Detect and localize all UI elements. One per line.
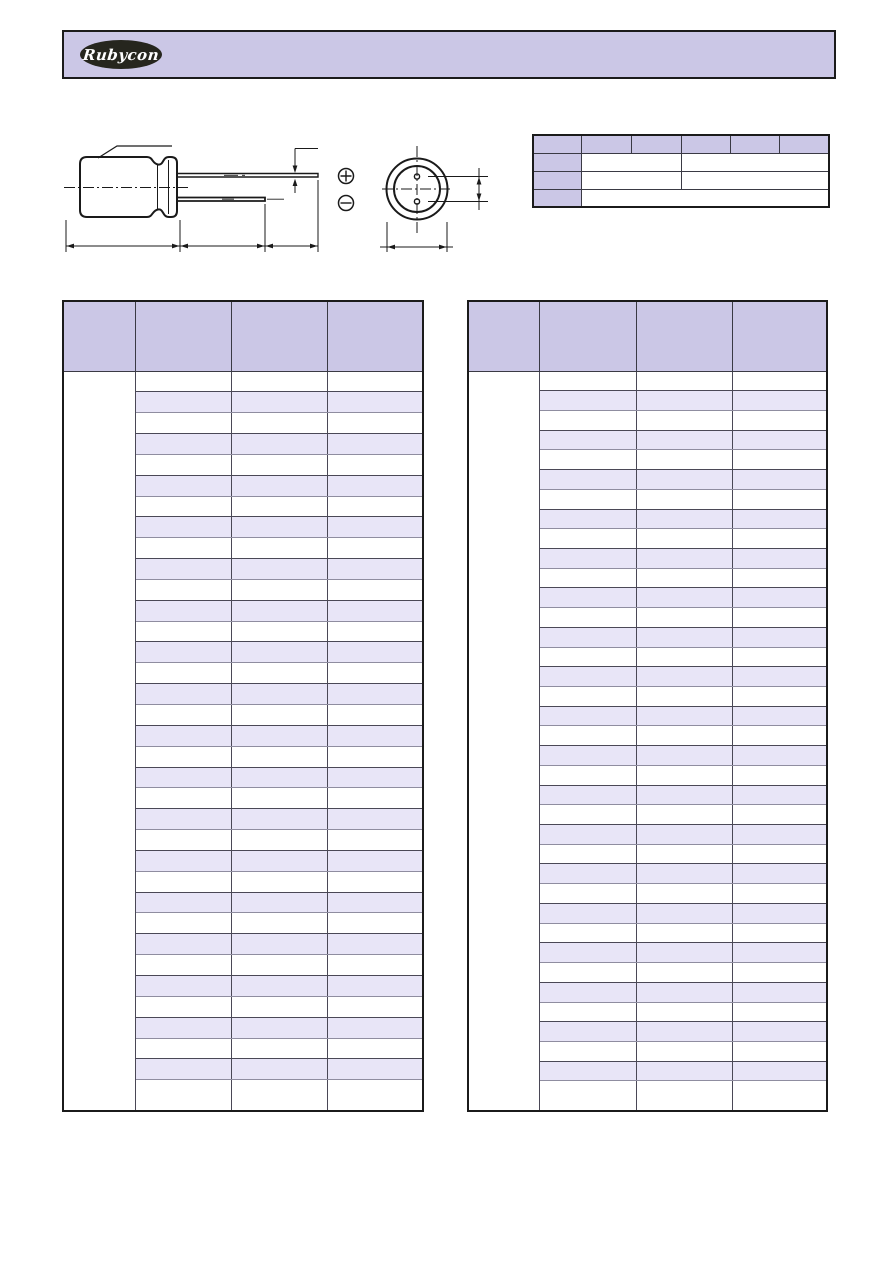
data-cell <box>327 934 423 955</box>
data-cell <box>327 371 423 392</box>
spec-header-cell <box>730 135 779 153</box>
column-header-cell <box>327 301 423 371</box>
data-cell <box>636 489 732 509</box>
data-cell <box>539 844 636 864</box>
data-cell <box>539 1061 636 1081</box>
data-cell <box>636 746 732 766</box>
series-label-cell <box>468 371 539 1111</box>
data-cell <box>636 470 732 490</box>
data-cell <box>327 1080 423 1111</box>
data-cell <box>636 765 732 785</box>
data-cell <box>636 1002 732 1022</box>
data-cell <box>231 517 327 538</box>
data-cell <box>539 1022 636 1042</box>
data-cell <box>636 982 732 1002</box>
data-cell <box>732 746 827 766</box>
data-cell <box>636 785 732 805</box>
data-cell <box>732 785 827 805</box>
data-cell <box>327 579 423 600</box>
data-cell <box>135 517 231 538</box>
data-cell <box>732 982 827 1002</box>
data-cell <box>732 825 827 845</box>
data-cell <box>636 391 732 411</box>
data-cell <box>135 892 231 913</box>
data-cell <box>231 663 327 684</box>
data-cell <box>539 410 636 430</box>
data-cell <box>231 621 327 642</box>
data-cell <box>539 884 636 904</box>
spec-header-cell <box>681 135 730 153</box>
data-cell <box>636 450 732 470</box>
data-cell <box>636 647 732 667</box>
spec-header-cell <box>533 135 581 153</box>
data-cell <box>636 371 732 391</box>
data-cell <box>732 529 827 549</box>
data-cell <box>636 943 732 963</box>
data-cell <box>135 579 231 600</box>
data-cell <box>539 509 636 529</box>
data-cell <box>732 1081 827 1111</box>
data-cell <box>539 706 636 726</box>
spec-value-cell <box>581 153 681 171</box>
data-cell <box>732 805 827 825</box>
data-cell <box>231 475 327 496</box>
data-cell <box>636 884 732 904</box>
data-cell <box>135 621 231 642</box>
data-cell <box>231 684 327 705</box>
data-cell <box>231 788 327 809</box>
bottom-view <box>380 146 488 252</box>
spec-value-cell <box>681 171 829 189</box>
data-cell <box>732 627 827 647</box>
data-cell <box>636 627 732 647</box>
data-cell <box>327 663 423 684</box>
data-cell <box>539 943 636 963</box>
column-header-cell <box>63 301 135 371</box>
data-cell <box>636 706 732 726</box>
data-cell <box>135 788 231 809</box>
data-cell <box>636 805 732 825</box>
data-cell <box>636 667 732 687</box>
data-cell <box>327 892 423 913</box>
data-cell <box>732 489 827 509</box>
data-cell <box>231 392 327 413</box>
data-cell <box>231 746 327 767</box>
data-cell <box>539 1041 636 1061</box>
data-cell <box>327 809 423 830</box>
data-cell <box>327 496 423 517</box>
data-cell <box>732 963 827 983</box>
data-cell <box>636 726 732 746</box>
data-cell <box>327 475 423 496</box>
data-cell <box>539 765 636 785</box>
data-cell <box>732 943 827 963</box>
data-cell <box>732 923 827 943</box>
data-cell <box>135 871 231 892</box>
data-cell <box>732 450 827 470</box>
data-cell <box>231 809 327 830</box>
spec-header-cell <box>533 153 581 171</box>
data-cell <box>539 489 636 509</box>
data-cell <box>231 830 327 851</box>
data-cell <box>135 913 231 934</box>
data-cell <box>636 548 732 568</box>
data-cell <box>732 608 827 628</box>
data-cell <box>636 825 732 845</box>
data-cell <box>539 450 636 470</box>
data-cell <box>732 391 827 411</box>
data-cell <box>135 767 231 788</box>
data-cell <box>231 538 327 559</box>
data-cell <box>327 1059 423 1080</box>
data-cell <box>732 1002 827 1022</box>
data-cell <box>327 955 423 976</box>
data-cell <box>636 864 732 884</box>
data-cell <box>231 850 327 871</box>
data-cell <box>135 1059 231 1080</box>
data-cell <box>732 509 827 529</box>
data-cell <box>539 805 636 825</box>
data-cell <box>732 588 827 608</box>
data-cell <box>732 903 827 923</box>
data-cell <box>539 470 636 490</box>
table-row <box>468 371 827 391</box>
data-cell <box>636 1061 732 1081</box>
data-cell <box>636 529 732 549</box>
column-header-cell <box>539 301 636 371</box>
column-header-cell <box>231 301 327 371</box>
data-cell <box>135 1080 231 1111</box>
data-cell <box>135 975 231 996</box>
data-cell <box>231 1059 327 1080</box>
data-cell <box>732 687 827 707</box>
data-cell <box>539 608 636 628</box>
column-header-cell <box>135 301 231 371</box>
data-cell <box>327 1038 423 1059</box>
data-cell <box>327 767 423 788</box>
data-cell <box>539 1002 636 1022</box>
data-cell <box>327 559 423 580</box>
spec-header-cell <box>631 135 681 153</box>
data-cell <box>327 871 423 892</box>
data-cell <box>327 975 423 996</box>
data-cell <box>231 871 327 892</box>
data-cell <box>327 1017 423 1038</box>
data-cell <box>135 955 231 976</box>
data-cell <box>636 430 732 450</box>
data-cell <box>231 996 327 1017</box>
data-cell <box>231 913 327 934</box>
data-cell <box>231 1080 327 1111</box>
data-cell <box>327 830 423 851</box>
rubycon-logo-text: Rubycon <box>82 46 160 64</box>
data-cell <box>539 391 636 411</box>
negative-lead <box>178 198 265 202</box>
polarity-negative-icon <box>339 196 354 211</box>
data-cell <box>231 1038 327 1059</box>
data-cell <box>539 982 636 1002</box>
data-cell <box>636 1022 732 1042</box>
data-cell <box>732 470 827 490</box>
data-cell <box>732 647 827 667</box>
data-cell <box>327 642 423 663</box>
data-cell <box>231 559 327 580</box>
data-cell <box>231 434 327 455</box>
data-cell <box>135 705 231 726</box>
data-cell <box>135 746 231 767</box>
data-cell <box>732 726 827 746</box>
data-cell <box>539 371 636 391</box>
data-cell <box>327 454 423 475</box>
data-cell <box>135 413 231 434</box>
data-cell <box>327 600 423 621</box>
ratings-table-left <box>62 300 424 1112</box>
spec-value-cell <box>581 189 829 207</box>
data-cell <box>539 548 636 568</box>
data-cell <box>135 496 231 517</box>
data-cell <box>327 684 423 705</box>
data-cell <box>539 667 636 687</box>
data-cell <box>231 454 327 475</box>
data-cell <box>732 706 827 726</box>
data-cell <box>135 642 231 663</box>
data-cell <box>231 600 327 621</box>
data-cell <box>135 538 231 559</box>
column-header-cell <box>468 301 539 371</box>
data-cell <box>327 705 423 726</box>
data-cell <box>231 934 327 955</box>
data-cell <box>732 430 827 450</box>
data-cell <box>539 923 636 943</box>
data-cell <box>636 509 732 529</box>
data-cell <box>327 788 423 809</box>
data-cell <box>135 809 231 830</box>
data-cell <box>231 892 327 913</box>
data-cell <box>135 996 231 1017</box>
data-cell <box>327 850 423 871</box>
data-cell <box>135 434 231 455</box>
capacitor-dimension-drawing <box>60 130 500 265</box>
data-cell <box>135 392 231 413</box>
data-cell <box>539 687 636 707</box>
table-row <box>63 371 423 392</box>
datasheet-page: Rubycon <box>0 0 893 1263</box>
data-cell <box>135 475 231 496</box>
data-cell <box>135 1038 231 1059</box>
side-view <box>64 146 354 252</box>
data-cell <box>539 746 636 766</box>
data-cell <box>732 844 827 864</box>
data-cell <box>327 621 423 642</box>
data-cell <box>327 538 423 559</box>
data-cell <box>636 410 732 430</box>
data-cell <box>135 454 231 475</box>
column-header-cell <box>732 301 827 371</box>
data-cell <box>231 955 327 976</box>
data-cell <box>636 608 732 628</box>
spec-value-cell <box>581 171 681 189</box>
data-cell <box>732 1022 827 1042</box>
data-cell <box>231 705 327 726</box>
data-cell <box>231 496 327 517</box>
data-cell <box>732 884 827 904</box>
data-cell <box>636 1081 732 1111</box>
data-cell <box>636 923 732 943</box>
spec-header-cell <box>533 189 581 207</box>
data-cell <box>732 410 827 430</box>
data-cell <box>539 647 636 667</box>
data-cell <box>539 963 636 983</box>
spec-header-cell <box>533 171 581 189</box>
data-cell <box>135 934 231 955</box>
data-cell <box>135 600 231 621</box>
spec-header-cell <box>581 135 631 153</box>
data-cell <box>636 588 732 608</box>
data-cell <box>732 667 827 687</box>
data-cell <box>327 517 423 538</box>
data-cell <box>732 1061 827 1081</box>
column-header-cell <box>636 301 732 371</box>
data-cell <box>327 996 423 1017</box>
data-cell <box>636 1041 732 1061</box>
data-cell <box>135 684 231 705</box>
rubycon-logo: Rubycon <box>80 40 162 69</box>
data-cell <box>327 746 423 767</box>
positive-lead <box>178 174 318 178</box>
data-cell <box>231 413 327 434</box>
data-cell <box>135 559 231 580</box>
data-cell <box>231 767 327 788</box>
data-cell <box>539 1081 636 1111</box>
data-cell <box>135 830 231 851</box>
data-cell <box>539 726 636 746</box>
data-cell <box>636 963 732 983</box>
data-cell <box>327 725 423 746</box>
polarity-positive-icon <box>339 169 354 184</box>
data-cell <box>135 1017 231 1038</box>
data-cell <box>327 434 423 455</box>
data-cell <box>539 627 636 647</box>
series-label-cell <box>63 371 135 1111</box>
data-cell <box>231 579 327 600</box>
data-cell <box>636 903 732 923</box>
data-cell <box>539 529 636 549</box>
data-cell <box>539 568 636 588</box>
data-cell <box>135 850 231 871</box>
data-cell <box>636 568 732 588</box>
data-cell <box>231 642 327 663</box>
data-cell <box>732 765 827 785</box>
data-cell <box>135 663 231 684</box>
spec-value-cell <box>681 153 829 171</box>
data-cell <box>231 1017 327 1038</box>
data-cell <box>327 413 423 434</box>
data-cell <box>231 975 327 996</box>
data-cell <box>135 725 231 746</box>
data-cell <box>732 864 827 884</box>
lead-diameter-dimension <box>293 149 318 194</box>
data-cell <box>231 725 327 746</box>
data-cell <box>636 844 732 864</box>
data-cell <box>636 687 732 707</box>
data-cell <box>539 864 636 884</box>
data-cell <box>539 430 636 450</box>
data-cell <box>732 568 827 588</box>
data-cell <box>231 371 327 392</box>
data-cell <box>732 371 827 391</box>
data-cell <box>732 1041 827 1061</box>
data-cell <box>539 903 636 923</box>
lead-spacing-dimension <box>428 168 488 210</box>
data-cell <box>539 825 636 845</box>
data-cell <box>327 392 423 413</box>
header-banner: Rubycon <box>62 30 836 79</box>
ratings-table-right <box>467 300 828 1112</box>
data-cell <box>327 913 423 934</box>
data-cell <box>539 785 636 805</box>
data-cell <box>135 371 231 392</box>
data-cell <box>539 588 636 608</box>
data-cell <box>732 548 827 568</box>
spec-header-cell <box>779 135 829 153</box>
spec-summary-table <box>532 134 830 208</box>
